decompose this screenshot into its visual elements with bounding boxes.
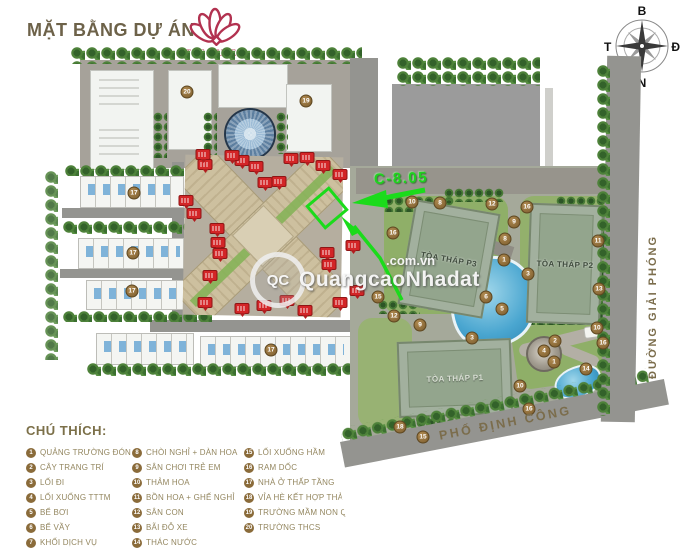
tree-row: [70, 46, 362, 64]
hedge: [153, 112, 167, 158]
map-number-badge: 10: [406, 196, 419, 209]
legend-item-label: BỂ BƠI: [40, 508, 69, 517]
map-number-badge: 10: [514, 380, 527, 393]
map-number-badge: 10: [591, 322, 604, 335]
legend-number-badge: 4: [26, 493, 36, 503]
legend-item-label: THẢM HOA: [146, 478, 190, 487]
legend-number-badge: 15: [244, 448, 254, 458]
legend-item: 7KHỐI DỊCH VỤ: [26, 535, 132, 550]
tower-p2-label: TÒA THÁP P2: [536, 259, 593, 270]
unit-pin-icon: [235, 303, 250, 314]
housing-road: [62, 208, 192, 218]
unit-pin-icon: [196, 149, 211, 160]
street-label-giai-phong: ĐƯỜNG GIẢI PHÓNG: [644, 203, 662, 379]
legend-item-label: LỐI XUỐNG HẦM: [258, 448, 325, 457]
unit-pin-icon: [213, 248, 228, 259]
unit-pin-icon: [210, 223, 225, 234]
legend-number-badge: 17: [244, 478, 254, 488]
map-number-badge: 1: [548, 356, 561, 369]
map-number-badge: 8: [434, 197, 447, 210]
legend-item: 12SÂN CON: [132, 505, 244, 520]
unit-pin-icon: [298, 305, 313, 316]
map-number-badge: 17: [126, 285, 139, 298]
legend-number-badge: 16: [244, 463, 254, 473]
unit-pin-icon: [272, 176, 287, 187]
unit-pin-icon: [320, 247, 335, 258]
hedge: [276, 112, 288, 154]
map-number-badge: 3: [522, 268, 535, 281]
unit-pin-icon: [249, 161, 264, 172]
housing-road: [60, 269, 192, 278]
legend-number-badge: 14: [132, 538, 142, 548]
legend-number-badge: 20: [244, 523, 254, 533]
unit-pin-icon: [198, 297, 213, 308]
service-building: [90, 70, 154, 170]
legend-number-badge: 13: [132, 523, 142, 533]
legend-number-badge: 9: [132, 463, 142, 473]
page: MẶT BẰNG DỰ ÁN THE QUEEN B Đ: [0, 0, 688, 550]
kindergarten-building: [286, 84, 332, 152]
map-number-badge: 13: [593, 283, 606, 296]
neighbor-block: [392, 84, 540, 176]
legend-number-badge: 11: [132, 493, 142, 503]
map-number-badge: 2: [549, 335, 562, 348]
legend-item-label: NHÀ Ở THẤP TẦNG: [258, 478, 335, 487]
map-number-badge: 16: [521, 201, 534, 214]
legend-item-label: QUẢNG TRƯỜNG ĐÓN: [40, 448, 131, 457]
map-number-badge: 16: [597, 337, 610, 350]
legend-item-label: LỐI XUỐNG TTTM: [40, 493, 111, 502]
legend-item: 6BỂ VẦY: [26, 520, 132, 535]
legend-item: 13BÃI ĐỖ XE: [132, 520, 244, 535]
legend-number-badge: 12: [132, 508, 142, 518]
neighbor-path: [545, 88, 553, 176]
legend-item: 2CÂY TRANG TRÍ: [26, 460, 132, 475]
legend-item-label: CÂY TRANG TRÍ: [40, 463, 104, 472]
tower-p2: TÒA THÁP P2: [526, 203, 604, 326]
legend-item-label: BỂ VẦY: [40, 523, 70, 532]
legend-item-label: THÁC NƯỚC: [146, 538, 197, 547]
legend-item-label: CHÒI NGHỈ + DÀN HOA: [146, 448, 238, 457]
legend-item-label: TRƯỜNG THCS: [258, 523, 320, 532]
unit-pin-icon: [350, 285, 365, 296]
unit-pin-icon: [322, 259, 337, 270]
low-rise-row: [96, 333, 194, 365]
unit-pin-icon: [258, 177, 273, 188]
legend-number-badge: 8: [132, 448, 142, 458]
map-number-badge: 11: [592, 235, 605, 248]
legend-item: 11BỒN HOA + GHẾ NGHỈ: [132, 490, 244, 505]
unit-pin-icon: [257, 300, 272, 311]
tree-column: [44, 170, 58, 360]
legend-number-badge: 10: [132, 478, 142, 488]
legend-number-badge: 3: [26, 478, 36, 488]
map-number-badge: 17: [265, 344, 278, 357]
unit-code-label: C-8.05: [374, 169, 429, 188]
legend-column: 8CHÒI NGHỈ + DÀN HOA9SÂN CHƠI TRẺ EM10TH…: [132, 445, 244, 550]
unit-pin-icon: [280, 295, 295, 306]
unit-pin-icon: [333, 169, 348, 180]
map-number-badge: 9: [508, 216, 521, 229]
unit-pin-icon: [211, 237, 226, 248]
map-number-badge: 1: [498, 254, 511, 267]
map-number-badge: 4: [538, 345, 551, 358]
map-number-badge: 20: [181, 86, 194, 99]
legend-number-badge: 18: [244, 493, 254, 503]
legend-number-badge: 5: [26, 508, 36, 518]
legend-item-label: BỒN HOA + GHẾ NGHỈ: [146, 493, 235, 502]
map-number-badge: 15: [417, 431, 430, 444]
unit-pin-icon: [203, 270, 218, 281]
map-number-badge: 9: [414, 319, 427, 332]
legend-number-badge: 1: [26, 448, 36, 458]
map-number-badge: 5: [496, 303, 509, 316]
map-number-badge: 16: [387, 227, 400, 240]
legend-item-label: KHỐI DỊCH VỤ: [40, 538, 97, 547]
legend-item-label: SÂN CHƠI TRẺ EM: [146, 463, 221, 472]
map-number-badge: 14: [580, 363, 593, 376]
unit-pin-icon: [179, 195, 194, 206]
legend-item: 9SÂN CHƠI TRẺ EM: [132, 460, 244, 475]
legend-number-badge: 19: [244, 508, 254, 518]
unit-pin-icon: [187, 208, 202, 219]
retail-building: [218, 64, 288, 108]
legend-number-badge: 2: [26, 463, 36, 473]
legend-item: 1QUẢNG TRƯỜNG ĐÓN: [26, 445, 132, 460]
tower-p1-label: TÒA THÁP P1: [426, 373, 483, 384]
map-number-badge: 15: [372, 291, 385, 304]
legend-number-badge: 6: [26, 523, 36, 533]
map-number-badge: 12: [388, 310, 401, 323]
tree-row: [396, 56, 540, 86]
map-number-badge: 12: [486, 198, 499, 211]
unit-pin-icon: [225, 150, 240, 161]
unit-pin-icon: [346, 240, 361, 251]
tower-p3-label: TÒA THÁP P3: [420, 250, 478, 269]
unit-pin-icon: [300, 152, 315, 163]
legend-item: 10THẢM HOA: [132, 475, 244, 490]
legend-column: 1QUẢNG TRƯỜNG ĐÓN2CÂY TRANG TRÍ3LỐI ĐI4L…: [26, 445, 132, 550]
unit-pin-icon: [316, 160, 331, 171]
legend-number-badge: 7: [26, 538, 36, 548]
legend-item: 5BỂ BƠI: [26, 505, 132, 520]
map-number-badge: 3: [466, 332, 479, 345]
legend-item: 4LỐI XUỐNG TTTM: [26, 490, 132, 505]
map-number-badge: 18: [394, 421, 407, 434]
unit-pin-icon: [284, 153, 299, 164]
legend-item-label: LỐI ĐI: [40, 478, 64, 487]
map-number-badge: 19: [300, 95, 313, 108]
legend-item: 8CHÒI NGHỈ + DÀN HOA: [132, 445, 244, 460]
tree-row: [86, 362, 354, 376]
legend-item: 3LỐI ĐI: [26, 475, 132, 490]
map-number-badge: 8: [499, 233, 512, 246]
map-number-badge: 6: [480, 291, 493, 304]
legend-item-label: SÂN CON: [146, 508, 184, 517]
legend-item: 14THÁC NƯỚC: [132, 535, 244, 550]
map-number-badge: 17: [127, 247, 140, 260]
unit-pin-icon: [333, 297, 348, 308]
legend-item-label: BÃI ĐỖ XE: [146, 523, 188, 532]
legend-item-label: RAM DỐC: [258, 463, 297, 472]
map-number-badge: 17: [128, 187, 141, 200]
